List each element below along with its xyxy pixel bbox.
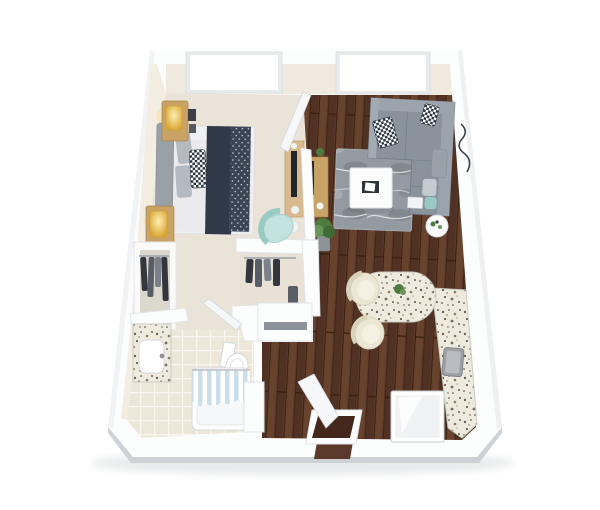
bar-stool-2 (353, 317, 384, 349)
kitchen-sink (442, 347, 464, 377)
table-lamp-1 (166, 106, 182, 130)
table-lamp-2 (150, 211, 167, 237)
kitchen-appliance (391, 391, 444, 442)
linen-cabinet-shelf (264, 322, 307, 330)
bedroom-tv (291, 151, 297, 197)
bed-pillow-2 (175, 165, 192, 198)
side-cabinet (244, 382, 264, 432)
nightstand-1 (162, 101, 188, 141)
floorplan-canvas (0, 0, 600, 510)
bedroom-window (186, 52, 282, 93)
round-side-table (426, 215, 448, 237)
floorplan-3d-render (0, 0, 600, 510)
bar-stool-1 (348, 273, 379, 305)
coffee-table (347, 168, 395, 214)
checkered-bed-pillow (189, 149, 207, 188)
living-room-window (336, 52, 430, 94)
teal-pillow (424, 197, 437, 210)
gray-pillow (431, 149, 447, 178)
vanity-faucet (160, 354, 165, 359)
bathtub (192, 368, 250, 430)
light-gray-pillow (422, 179, 437, 197)
apartment-unit (108, 50, 502, 463)
book-on-sofa (407, 197, 423, 209)
wall-frame-2 (189, 124, 196, 133)
knit-throw (229, 126, 251, 231)
wall-frame-1 (188, 109, 196, 121)
shower-curtain (192, 370, 250, 406)
vanity (133, 324, 171, 382)
